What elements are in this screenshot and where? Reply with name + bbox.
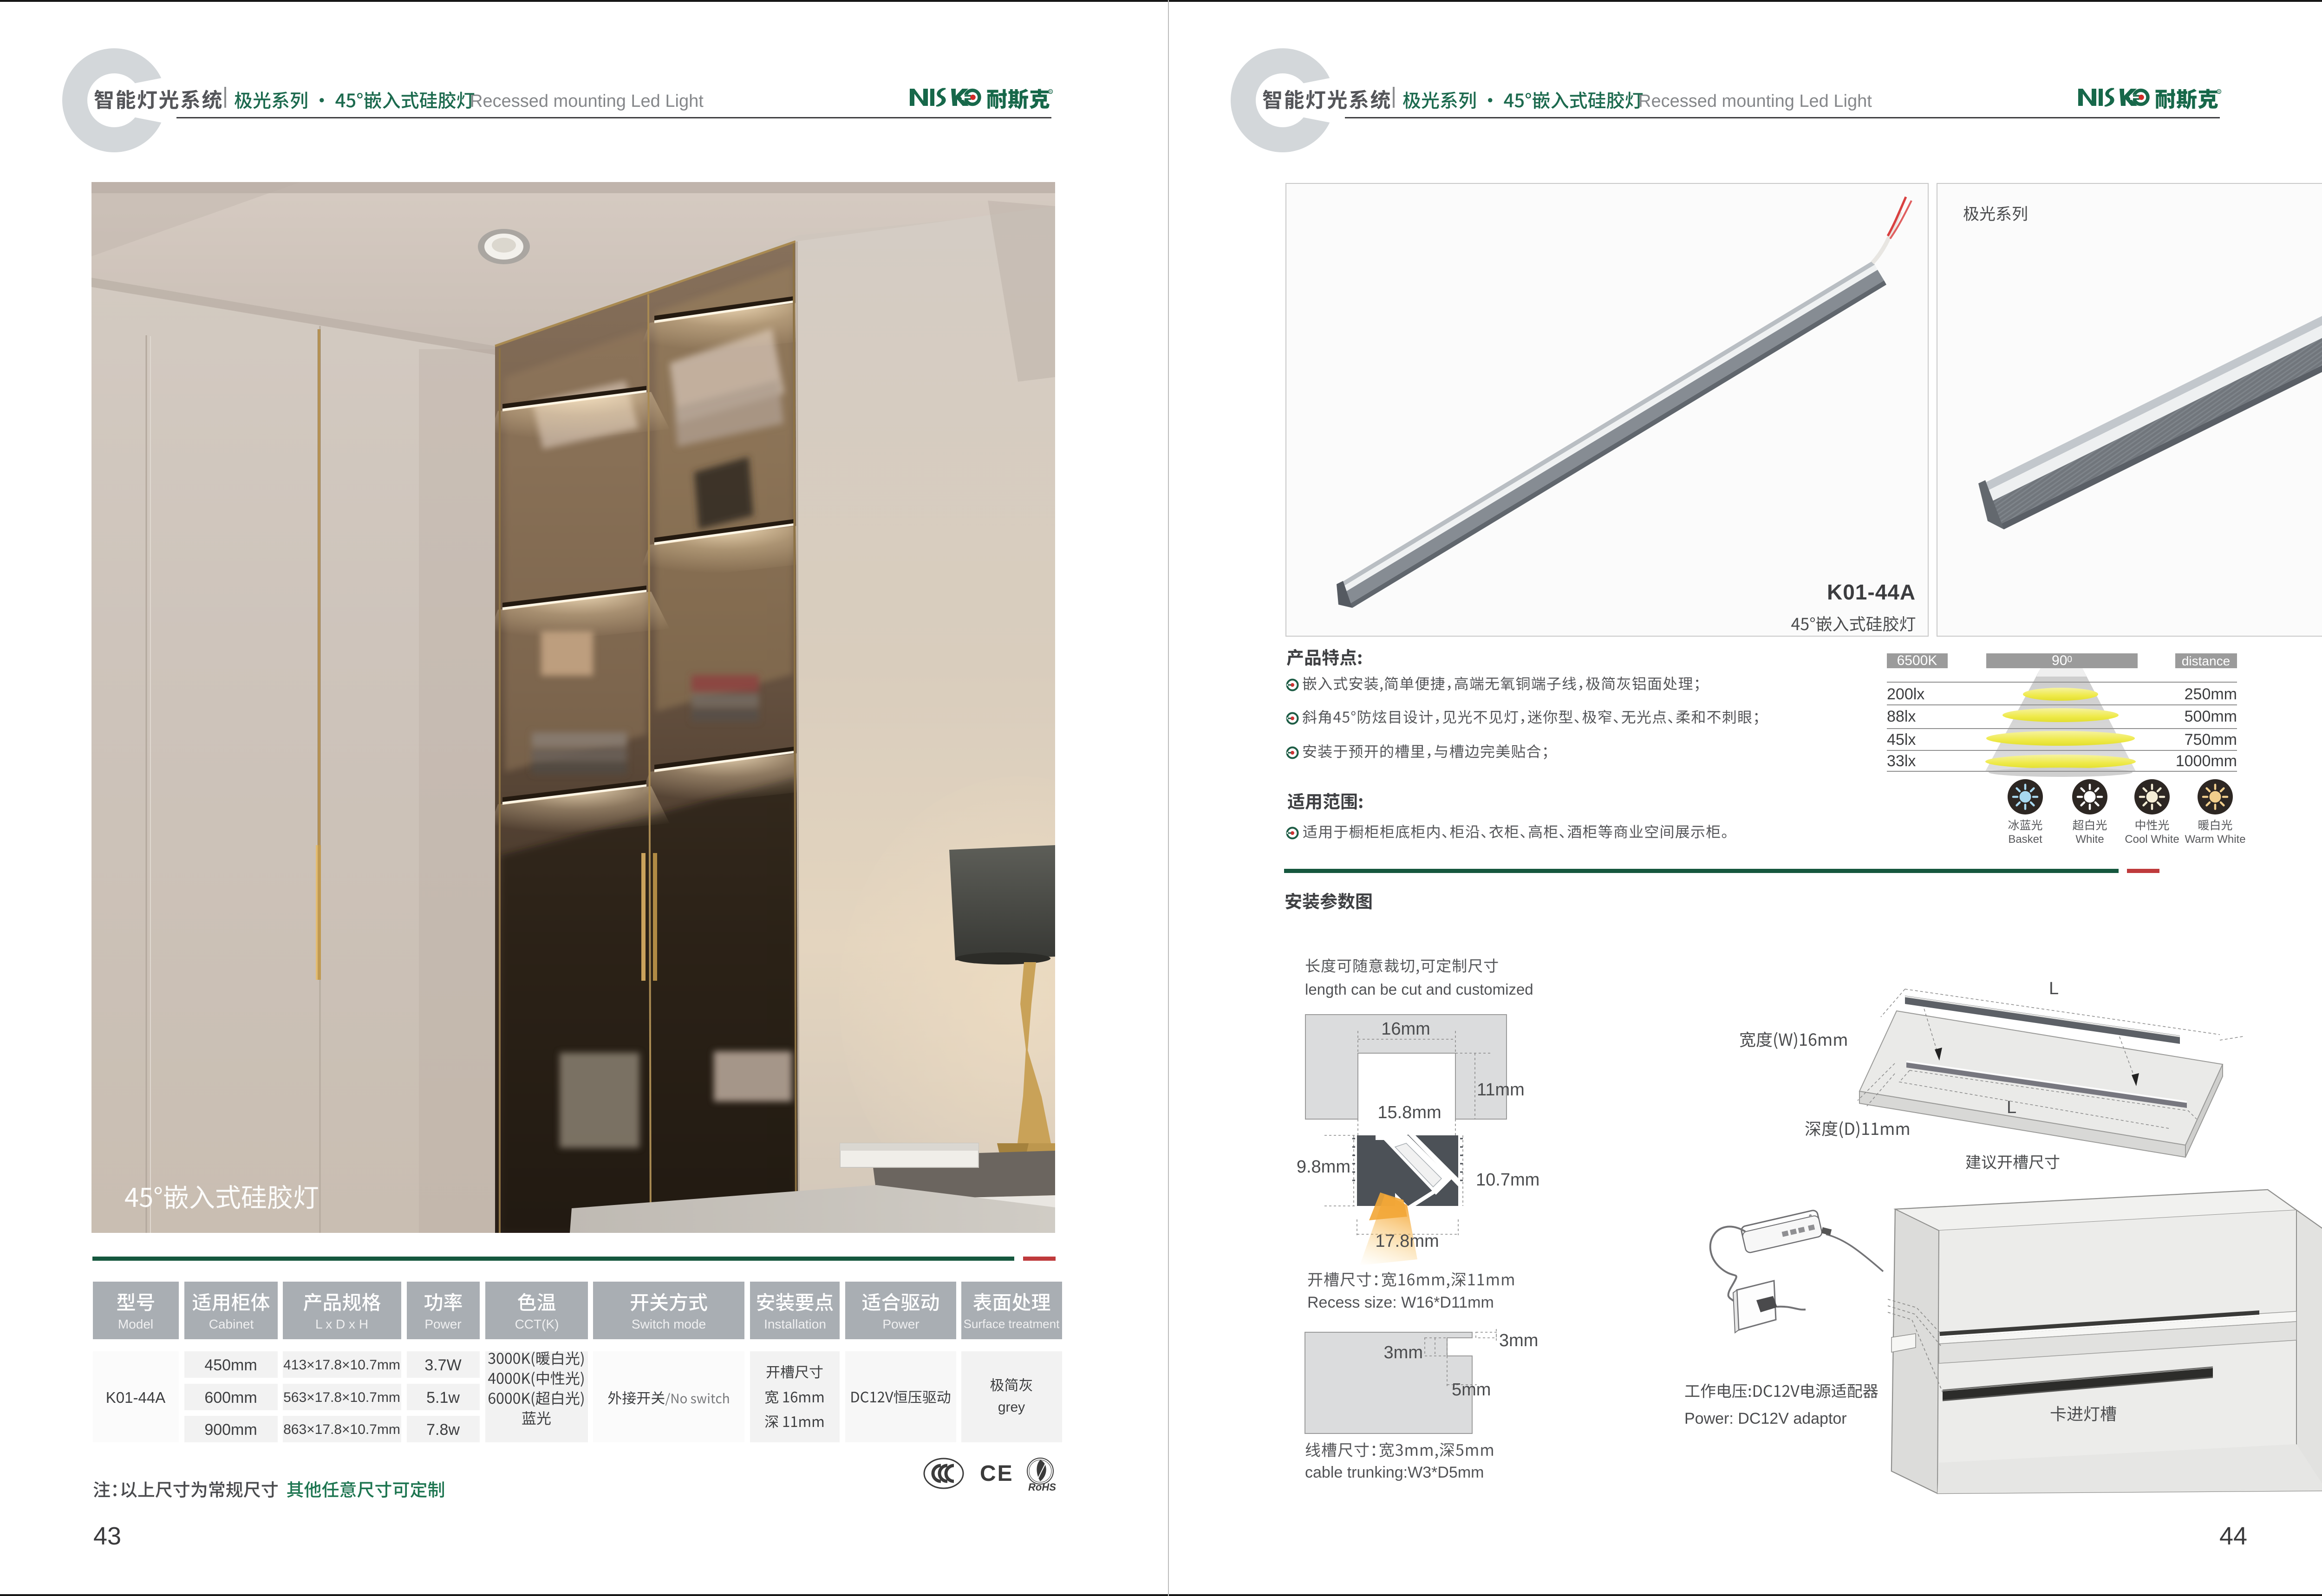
svg-text:R: R <box>2218 90 2220 94</box>
svg-text:CE: CE <box>980 1461 1014 1486</box>
svg-text:RoHS: RoHS <box>1028 1481 1056 1492</box>
svg-text:R: R <box>1049 90 1052 94</box>
